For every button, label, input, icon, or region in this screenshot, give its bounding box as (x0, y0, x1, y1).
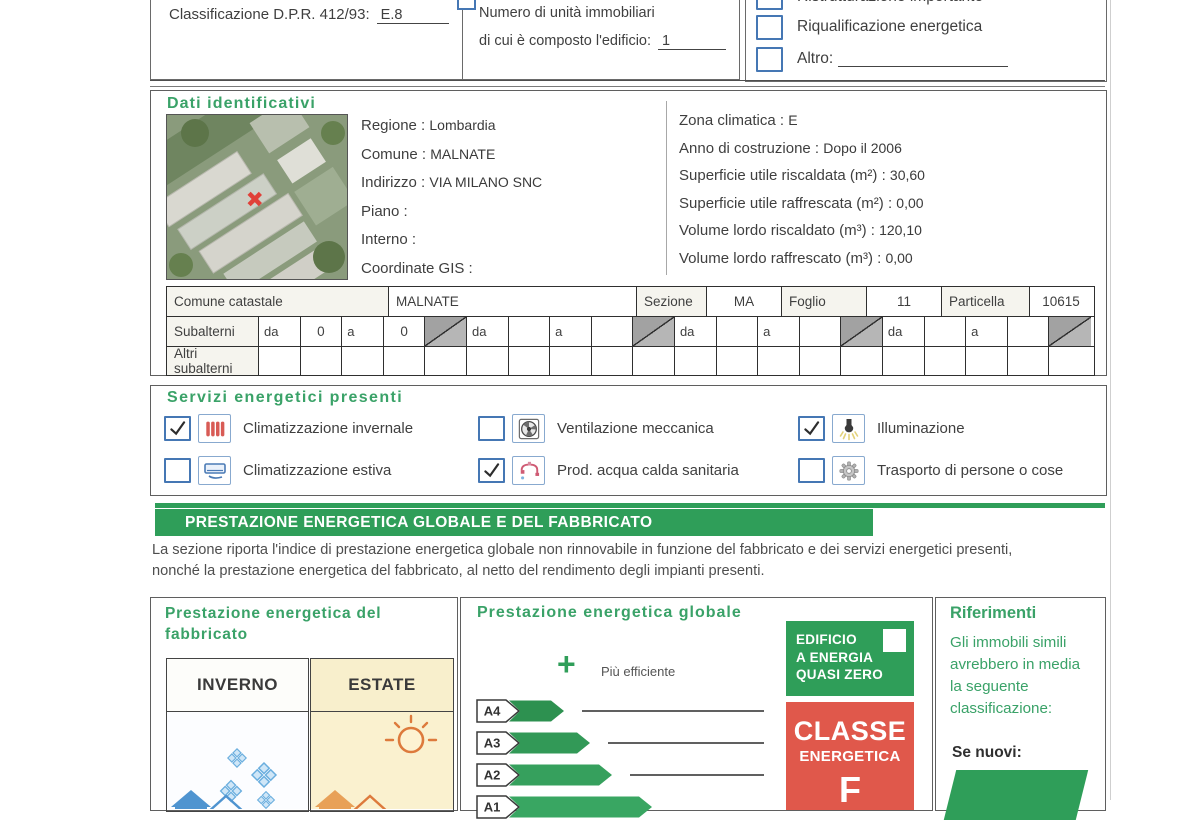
field-value: E (788, 112, 797, 128)
motivation-box: Ristrutturazione importanteRiqualificazi… (745, 0, 1107, 82)
address-field-row: Comune : MALNATE (361, 146, 542, 175)
altri-subalterni-row: Altri subalterni (167, 347, 1094, 375)
empty-cell (800, 347, 842, 375)
service-label: Climatizzazione invernale (243, 420, 413, 437)
references-panel: Riferimenti Gli immobili similiavrebbero… (935, 597, 1106, 811)
field-label: Superficie utile raffrescata (m²) : (679, 195, 896, 212)
a-label: a (758, 317, 800, 346)
subalterni-label: Subalterni (167, 317, 259, 346)
da-label: da (259, 317, 301, 346)
motivation-row: Altro: (756, 47, 1008, 71)
references-line: la seguente (950, 676, 1080, 698)
service-item: Ventilazione meccanica (478, 414, 714, 443)
empty-cell (675, 347, 717, 375)
references-title: Riferimenti (950, 604, 1036, 623)
winter-header: INVERNO (167, 659, 308, 712)
catasto-cell: MALNATE (389, 287, 637, 316)
empty-cell (1008, 347, 1050, 375)
banner-strip (155, 503, 1105, 508)
class-row-A2: A2 (476, 762, 786, 788)
motivation-label: Altro: (797, 50, 833, 68)
catasto-cell: Sezione (637, 287, 707, 316)
field-label: Zona climatica : (679, 112, 788, 129)
energy-class-value: F (786, 769, 914, 811)
winter-box: INVERNO (166, 658, 309, 812)
field-value: 0,00 (896, 195, 923, 211)
address-field-row: Interno : (361, 231, 542, 260)
checked-checkbox (478, 458, 505, 483)
double-rule-bottom (150, 86, 1105, 87)
subalterno-value: 0 (301, 317, 343, 346)
address-field-row: Piano : (361, 203, 542, 232)
more-efficient-label: Più efficiente (601, 664, 675, 679)
empty-cell (966, 347, 1008, 375)
empty-cell (425, 347, 467, 375)
units-label-line2: di cui è composto l'edificio:1 (479, 33, 726, 50)
service-item: Climatizzazione estiva (164, 456, 391, 485)
da-label: da (467, 317, 509, 346)
empty-cell (841, 347, 883, 375)
energy-services-section: Servizi energetici presenti Climatizzazi… (150, 385, 1107, 496)
field-value: VIA MILANO SNC (429, 174, 542, 190)
motivation-label: Ristrutturazione importante (797, 0, 983, 6)
clipped-checkbox (457, 0, 476, 10)
address-field-row: Indirizzo : VIA MILANO SNC (361, 174, 542, 203)
diagonal-cell (841, 317, 883, 346)
empty-cell (717, 347, 759, 375)
class-row-A1: A1 (476, 794, 786, 820)
plus-icon: + (557, 646, 576, 683)
title-line1: Prestazione energetica del (165, 603, 381, 624)
unchecked-checkbox (164, 458, 191, 483)
building-performance-panel: Prestazione energetica del fabbricato IN… (150, 597, 458, 811)
blank-line (838, 51, 1008, 67)
empty-cell (592, 347, 634, 375)
svg-text:A2: A2 (484, 768, 501, 783)
global-performance-title: Prestazione energetica globale (477, 604, 742, 622)
building-data-fields: Zona climatica : EAnno di costruzione : … (679, 112, 925, 278)
field-value: 120,10 (879, 222, 922, 238)
class-row-A3: A3 (476, 730, 786, 756)
catasto-cell: MA (707, 287, 782, 316)
classification-label: Classificazione D.P.R. 412/93: (169, 6, 370, 23)
da-label: da (883, 317, 925, 346)
svg-text:A4: A4 (484, 704, 501, 719)
catasto-cell: Particella (942, 287, 1030, 316)
service-label: Illuminazione (877, 420, 965, 437)
aerial-photo (167, 115, 347, 279)
field-label: Piano : (361, 203, 408, 220)
fan-icon (512, 414, 545, 443)
service-item: Trasporto di persone o cose (798, 456, 1063, 485)
catasto-cell: 11 (867, 287, 942, 316)
empty-cell (342, 347, 384, 375)
diagonal-cell (633, 317, 675, 346)
winter-body (167, 712, 308, 809)
field-value: Dopo il 2006 (823, 140, 902, 156)
intro-paragraph: La sezione riporta l'indice di prestazio… (152, 540, 1142, 582)
empty-cell (509, 347, 551, 375)
global-performance-panel: Prestazione energetica globale + Più eff… (460, 597, 933, 811)
empty-cell (633, 347, 675, 375)
if-new-label: Se nuovi: (952, 744, 1022, 762)
intro-line1: La sezione riporta l'indice di prestazio… (152, 540, 1142, 561)
classification-line: Classificazione D.P.R. 412/93:E.8 (169, 6, 449, 24)
intro-line2: nonché la prestazione energetica del fab… (152, 561, 1142, 582)
field-value: 30,60 (890, 167, 925, 183)
empty-cell (550, 347, 592, 375)
energy-class-scale: A4A3A2A1 (476, 698, 788, 810)
identification-title: Dati identificativi (167, 95, 316, 113)
address-fields: Regione : LombardiaComune : MALNATEIndir… (361, 117, 542, 289)
cadastral-table: Comune catastaleMALNATESezioneMAFoglio11… (166, 286, 1095, 376)
subalterno-value (717, 317, 759, 346)
summer-illustration (311, 712, 450, 809)
scanned-energy-certificate: { "colors": { "accent_green": "#2f9e59",… (0, 0, 1200, 800)
subalterno-value (509, 317, 551, 346)
reference-class-shape (944, 770, 1088, 820)
catasto-cell: 10615 (1030, 287, 1092, 316)
empty-cell (384, 347, 426, 375)
svg-text:A1: A1 (484, 800, 501, 815)
subalterno-value (800, 317, 842, 346)
motivation-label: Riqualificazione energetica (797, 18, 982, 36)
class-row-A4: A4 (476, 698, 786, 724)
winter-illustration (167, 712, 305, 809)
double-rule-top (150, 80, 1105, 81)
service-label: Prod. acqua calda sanitaria (557, 462, 739, 479)
empty-cell (467, 347, 509, 375)
building-data-row: Volume lordo riscaldato (m³) : 120,10 (679, 222, 925, 250)
diagonal-cell (1049, 317, 1091, 346)
a-label: a (966, 317, 1008, 346)
empty-cell (259, 347, 301, 375)
a-label: a (550, 317, 592, 346)
subalterno-value (592, 317, 634, 346)
title-line2: fabbricato (165, 624, 381, 645)
service-label: Ventilazione meccanica (557, 420, 714, 437)
units-box: Numero di unità immobiliari di cui è com… (462, 0, 740, 80)
field-label: Anno di costruzione : (679, 140, 823, 157)
field-label: Indirizzo : (361, 174, 429, 191)
check-icon (169, 421, 186, 436)
service-item: Prod. acqua calda sanitaria (478, 456, 739, 485)
svg-text:A3: A3 (484, 736, 501, 751)
energy-class-box: CLASSE ENERGETICA F (786, 702, 914, 810)
field-label: Interno : (361, 231, 416, 248)
unchecked-checkbox (478, 416, 505, 441)
altri-subalterni-label: Altri subalterni (167, 347, 259, 375)
catasto-cell: Foglio (782, 287, 867, 316)
units-label-line1: Numero di unità immobiliari (479, 5, 655, 21)
references-line: Gli immobili simili (950, 632, 1080, 654)
satellite-image (166, 114, 348, 280)
field-label: Volume lordo riscaldato (m³) : (679, 222, 879, 239)
unchecked-checkbox (756, 0, 783, 10)
unchecked-checkbox (756, 47, 783, 72)
references-line: classificazione: (950, 698, 1080, 720)
empty-cell (883, 347, 925, 375)
radiator-icon (198, 414, 231, 443)
building-data-row: Anno di costruzione : Dopo il 2006 (679, 140, 925, 168)
checked-checkbox (798, 416, 825, 441)
summer-box: ESTATE (310, 658, 454, 812)
subalterno-value (925, 317, 967, 346)
check-icon (483, 463, 500, 478)
light-bulb-icon (832, 414, 865, 443)
service-item: Climatizzazione invernale (164, 414, 413, 443)
subalterni-row: Subalternida0a0daadaadaa (167, 317, 1094, 347)
empty-cell (758, 347, 800, 375)
da-label: da (675, 317, 717, 346)
subalterno-value (1008, 317, 1050, 346)
nzeb-line3: QUASI ZERO (796, 666, 914, 684)
unchecked-checkbox (756, 15, 783, 40)
energetica-word: ENERGETICA (786, 748, 914, 765)
references-text: Gli immobili similiavrebbero in mediala … (950, 632, 1080, 720)
faucet-icon (512, 456, 545, 485)
classification-value: E.8 (377, 7, 449, 24)
checked-checkbox (164, 416, 191, 441)
field-label: Volume lordo raffrescato (m³) : (679, 250, 885, 267)
summer-header: ESTATE (311, 659, 453, 712)
section-banner: PRESTAZIONE ENERGETICA GLOBALE E DEL FAB… (155, 509, 873, 536)
service-label: Climatizzazione estiva (243, 462, 391, 479)
motivation-row: Ristrutturazione importante (756, 0, 983, 9)
field-value: 0,00 (885, 250, 912, 266)
building-performance-title: Prestazione energetica del fabbricato (165, 603, 381, 645)
address-field-row: Regione : Lombardia (361, 117, 542, 146)
service-label: Trasporto di persone o cose (877, 462, 1063, 479)
building-data-row: Superficie utile raffrescata (m²) : 0,00 (679, 195, 925, 223)
classification-box: Classificazione D.P.R. 412/93:E.8 (150, 0, 464, 80)
units-label: di cui è composto l'edificio: (479, 33, 651, 49)
empty-cell (301, 347, 343, 375)
motivation-row: Riqualificazione energetica (756, 15, 982, 39)
references-line: avrebbero in media (950, 654, 1080, 676)
address-field-row: Coordinate GIS : (361, 260, 542, 289)
unchecked-checkbox (798, 458, 825, 483)
a-label: a (342, 317, 384, 346)
field-label: Coordinate GIS : (361, 260, 473, 277)
catasto-header-row: Comune catastaleMALNATESezioneMAFoglio11… (167, 287, 1094, 317)
energy-services-title: Servizi energetici presenti (167, 389, 403, 407)
empty-cell (925, 347, 967, 375)
page-edge (1110, 0, 1111, 800)
vertical-divider (666, 101, 667, 275)
sun-icon (386, 716, 436, 752)
subalterno-value: 0 (384, 317, 426, 346)
nzeb-box: EDIFICIO A ENERGIA QUASI ZERO (786, 621, 914, 696)
empty-cell (1049, 347, 1091, 375)
field-label: Superficie utile riscaldata (m²) : (679, 167, 890, 184)
air-conditioner-icon (198, 456, 231, 485)
service-item: Illuminazione (798, 414, 965, 443)
catasto-cell: Comune catastale (167, 287, 389, 316)
gear-icon (832, 456, 865, 485)
classe-word: CLASSE (786, 716, 914, 747)
summer-body (311, 712, 453, 809)
building-data-row: Zona climatica : E (679, 112, 925, 140)
field-value: Lombardia (429, 117, 495, 133)
units-value: 1 (658, 33, 726, 50)
field-value: MALNATE (430, 146, 495, 162)
nzeb-checkbox (883, 629, 906, 652)
field-label: Comune : (361, 146, 430, 163)
building-data-row: Superficie utile riscaldata (m²) : 30,60 (679, 167, 925, 195)
field-label: Regione : (361, 117, 429, 134)
building-data-row: Volume lordo raffrescato (m³) : 0,00 (679, 250, 925, 278)
diagonal-cell (425, 317, 467, 346)
check-icon (803, 421, 820, 436)
identification-section: Dati identificativi (150, 90, 1107, 376)
